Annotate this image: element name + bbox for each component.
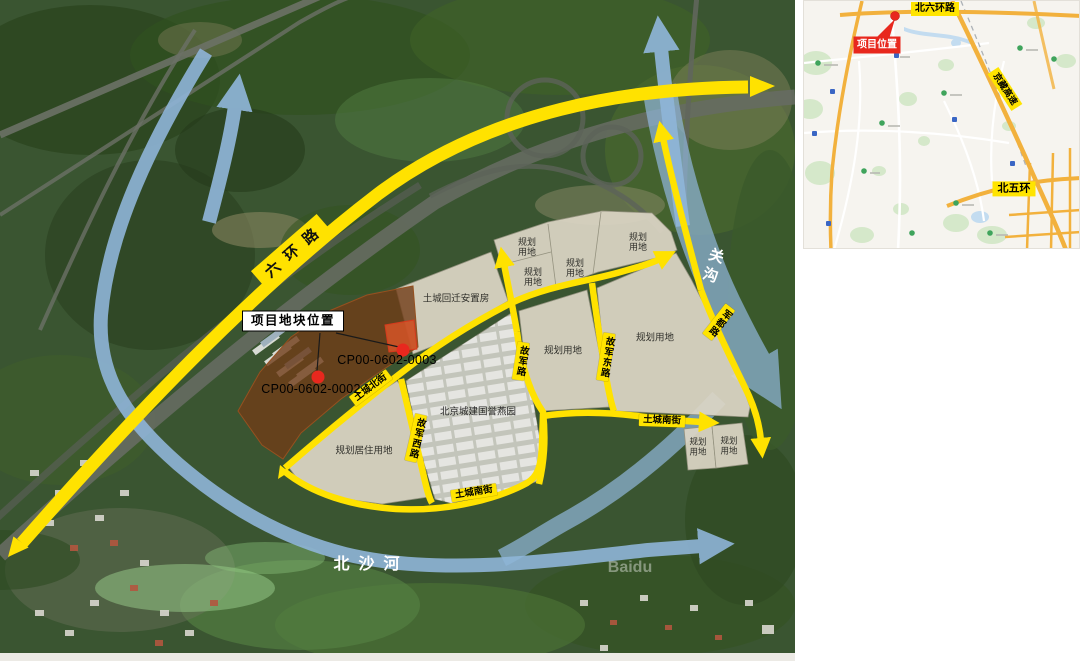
label-planning-3: 规划用地 [564, 258, 586, 278]
project-parcel-callout: 项目地块位置 [242, 311, 344, 332]
label-planning-1: 规划用地 [516, 237, 538, 257]
label-planning-se1: 规划用地 [688, 437, 708, 456]
main-map[interactable]: 六环路 土城北街 土城南街 土城南街 故军西路 故军路 故军东路 军都路 关沟 … [0, 0, 795, 657]
map-watermark: Baidu [608, 559, 652, 577]
label-planning-mid: 规划用地 [544, 347, 582, 358]
label-planning-4: 规划用地 [627, 232, 649, 252]
label-resettlement: 土城回迁安置房 [423, 295, 490, 306]
label-guoyu-compound: 北京城建国誉燕园 [440, 408, 516, 419]
map-bottom-strip [0, 653, 795, 661]
label-cp00-0602-0002: CP00-0602-0002 [261, 382, 360, 396]
label-planning-se2: 规划用地 [719, 436, 739, 455]
inset-project-badge: 项目位置 [854, 37, 901, 54]
inset-base [804, 1, 1080, 249]
label-planning-2: 规划用地 [522, 267, 544, 287]
label-planning-east: 规划用地 [636, 334, 674, 345]
label-tucheng-south-e: 土城南街 [639, 414, 685, 428]
inset-label-north-sixth-ring: 北六环路 [911, 2, 959, 16]
inset-label-north-fifth-ring: 北五环 [993, 181, 1036, 196]
label-planning-residential: 规划居住用地 [335, 447, 392, 458]
page: 六环路 土城北街 土城南街 土城南街 故军西路 故军路 故军东路 军都路 关沟 … [0, 0, 1080, 661]
label-cp00-0602-0003: CP00-0602-0003 [337, 353, 436, 367]
inset-map[interactable]: 北六环路 京藏高速 北五环 项目位置 [803, 0, 1080, 249]
label-river-beishahe: 北沙河 [333, 550, 408, 574]
